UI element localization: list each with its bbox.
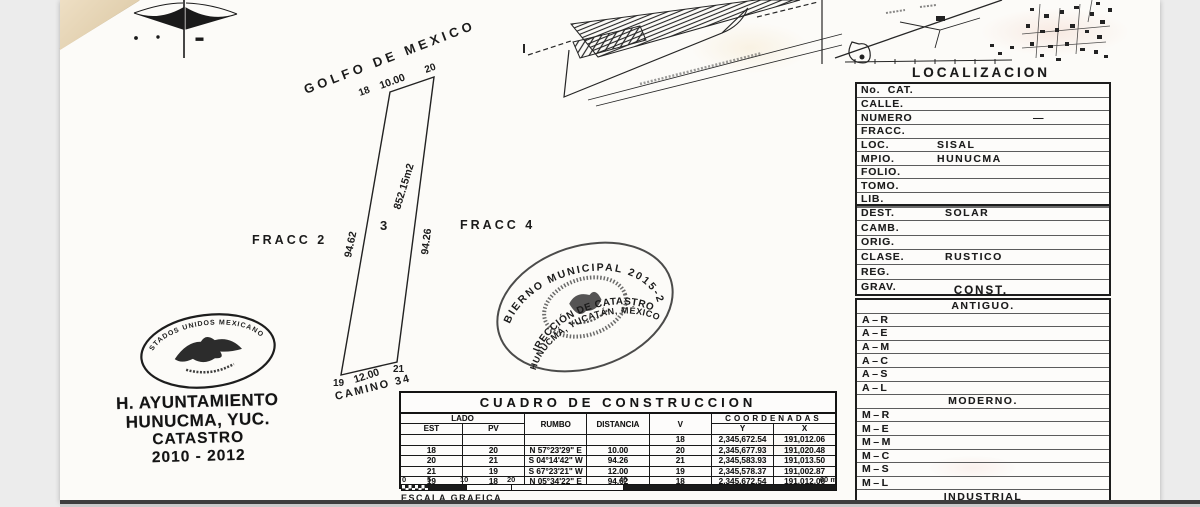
field-calle: CALLE.: [857, 97, 1109, 111]
table-row: 1820N 57°23'29" E10.00202,345,677.93191,…: [400, 445, 836, 456]
header-pv: PV: [462, 424, 524, 435]
field-reg: REG.: [857, 264, 1109, 279]
const-row-m-s: M–S: [857, 462, 1109, 476]
header-est: EST: [400, 424, 462, 435]
tick-10: 10: [460, 475, 468, 484]
const-header-moderno: MODERNO.: [857, 394, 1109, 408]
field-folio: FOLIO.: [857, 165, 1109, 179]
field-clase: CLASE.RUSTICO: [857, 249, 1109, 264]
eagle-icon: [173, 333, 243, 366]
header-distancia: DISTANCIA: [587, 413, 649, 435]
scanned-cadastral-document: GOLFO DE MEXICO 18 10.00 20 852.15m2 94.…: [0, 0, 1200, 507]
top-length: 10.00: [378, 72, 407, 92]
const-header-antiguo: ANTIGUO.: [857, 300, 1109, 313]
header-y: Y: [711, 424, 773, 435]
field-camb: CAMB.: [857, 220, 1109, 235]
round-seal-stamp: GOBIERNO MUNICIPAL 2015-2018 DIRECCIÓN D…: [481, 221, 690, 393]
field-fracc: FRACC.: [857, 124, 1109, 138]
field-loc: LOC.SISAL: [857, 138, 1109, 152]
tick-60m: 60 m: [820, 475, 837, 484]
scale-bar: 0 5 10 20 40 60 m ESCALA GRAFICA: [401, 475, 837, 503]
north-arrow-icon: [134, 0, 237, 58]
tick-5: 5: [427, 475, 431, 484]
lot-number: 3: [380, 218, 387, 233]
scale-ticks: 0 5 10 20 40 60 m: [401, 475, 837, 484]
vertex-19: 19: [333, 378, 345, 389]
const-row-a-m: A–M: [857, 340, 1109, 354]
location-map-inset: [822, 0, 1112, 64]
const-row-m-r: M–R: [857, 408, 1109, 422]
localizacion-form: No. CAT. CALLE. NUMERO— FRACC. LOC.SISAL…: [855, 82, 1111, 208]
const-row-a-c: A–C: [857, 353, 1109, 367]
construcciones-form: ANTIGUO. A–R A–E A–M A–C A–S A–L MODERNO…: [855, 298, 1111, 507]
const-row-a-r: A–R: [857, 313, 1109, 327]
const-row-m-m: M–M: [857, 435, 1109, 449]
field-numero: NUMERO—: [857, 110, 1109, 124]
header-coordenadas: COORDENADAS: [711, 413, 836, 424]
header-lado: LADO: [400, 413, 525, 424]
const-row-a-e: A–E: [857, 326, 1109, 340]
eagle-stamp-emblem: ESTADOS UNIDOS MEXICANOS: [137, 307, 279, 395]
coastal-strip-inset: [524, 0, 842, 106]
table-title: CUADRO DE CONSTRUCCION: [400, 392, 836, 413]
const-title: CONST.: [855, 285, 1107, 297]
field-mpio: MPIO.HUNUCMA: [857, 151, 1109, 165]
fracc-2-label: FRACC 2: [252, 233, 327, 247]
header-rumbo: RUMBO: [525, 413, 587, 435]
left-length: 94.62: [342, 230, 359, 258]
field-no-cat: No. CAT.: [857, 84, 1109, 97]
localizacion-title: LOCALIZACION: [855, 65, 1107, 80]
table-row: 182,345,672.54191,012.06: [400, 435, 836, 446]
tick-20: 20: [507, 475, 515, 484]
const-row-m-e: M–E: [857, 421, 1109, 435]
field-dest: DEST.SOLAR: [857, 206, 1109, 220]
fracc-4-label: FRACC 4: [460, 218, 535, 232]
vertex-20: 20: [423, 62, 438, 76]
const-row-a-s: A–S: [857, 367, 1109, 381]
field-tomo: TOMO.: [857, 178, 1109, 192]
const-row-m-c: M–C: [857, 449, 1109, 463]
ayuntamiento-stamp-text: H. AYUNTAMIENTO HUNUCMA, YUC. CATASTRO 2…: [94, 389, 302, 468]
const-row-m-l: M–L: [857, 476, 1109, 490]
area-label: 852.15m2: [391, 162, 416, 211]
field-orig: ORIG.: [857, 235, 1109, 250]
right-length: 94.26: [419, 228, 434, 256]
lot-diagram: GOLFO DE MEXICO 18 10.00 20 852.15m2 94.…: [252, 17, 535, 403]
const-row-a-l: A–L: [857, 381, 1109, 395]
header-x: X: [774, 424, 836, 435]
tick-0: 0: [402, 475, 406, 484]
table-row: 2021S 04°14'42" W94.26212,345,583.93191,…: [400, 456, 836, 467]
bottom-edge-highlight: [60, 504, 1200, 507]
tick-40: 40: [619, 475, 627, 484]
header-v: V: [649, 413, 711, 435]
scale-bar-graphic: [401, 484, 837, 491]
predio-form: DEST.SOLAR CAMB. ORIG. CLASE.RUSTICO REG…: [855, 204, 1111, 296]
vertex-18: 18: [357, 85, 372, 99]
